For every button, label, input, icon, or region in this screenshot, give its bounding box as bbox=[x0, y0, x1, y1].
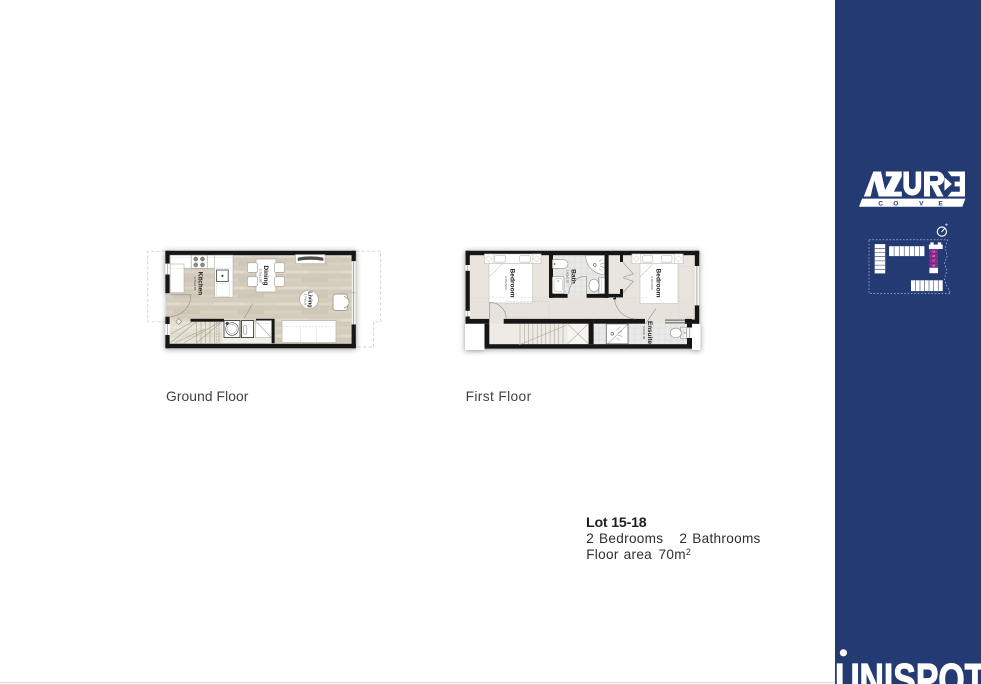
svg-text:E: E bbox=[938, 200, 943, 207]
svg-text:3.74x3.31: 3.74x3.31 bbox=[304, 294, 308, 306]
svg-text:2.70x1.88: 2.70x1.88 bbox=[258, 269, 262, 283]
svg-text:C: C bbox=[878, 200, 883, 207]
svg-text:V: V bbox=[919, 200, 924, 207]
svg-text:O: O bbox=[893, 200, 898, 207]
svg-text:Bedroom: Bedroom bbox=[509, 269, 516, 298]
svg-text:2.70x2.65: 2.70x2.65 bbox=[193, 277, 197, 291]
svg-text:2.70x3.00: 2.70x3.00 bbox=[504, 276, 508, 290]
svg-text:UNISPOT: UNISPOT bbox=[835, 655, 981, 684]
svg-text:2.70x3.00: 2.70x3.00 bbox=[650, 276, 654, 290]
svg-text:1.65x2.20: 1.65x2.20 bbox=[566, 270, 570, 284]
svg-text:3.32x0.98: 3.32x0.98 bbox=[642, 326, 646, 340]
svg-text:Bedroom: Bedroom bbox=[655, 269, 662, 298]
